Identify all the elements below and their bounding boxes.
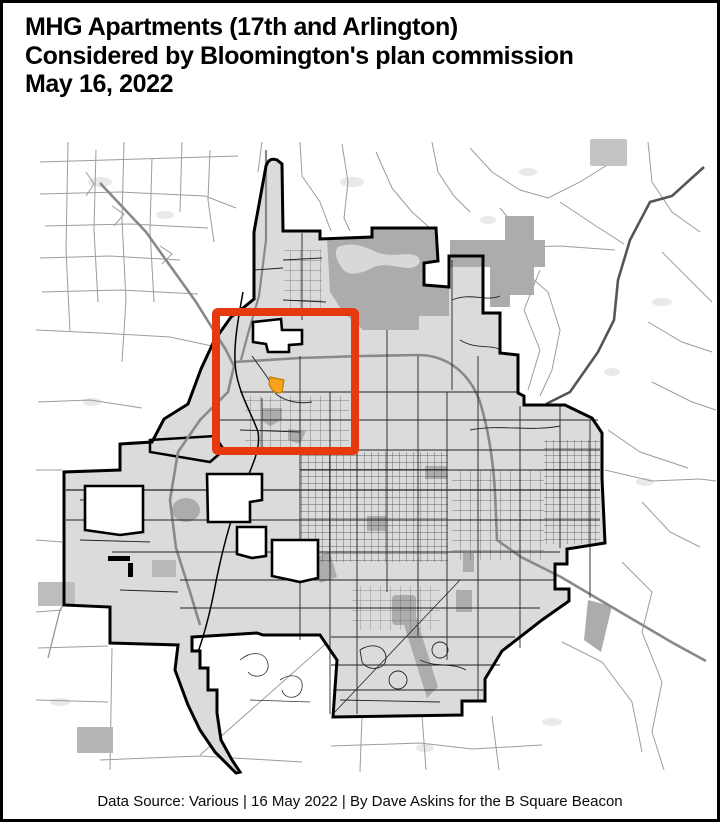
bloomington-city-map (3, 3, 717, 819)
source-caption: Data Source: Various | 16 May 2022 | By … (3, 793, 717, 810)
highway-45-northeast (546, 167, 704, 404)
infographic-page: MHG Apartments (17th and Arlington) Cons… (0, 0, 720, 822)
